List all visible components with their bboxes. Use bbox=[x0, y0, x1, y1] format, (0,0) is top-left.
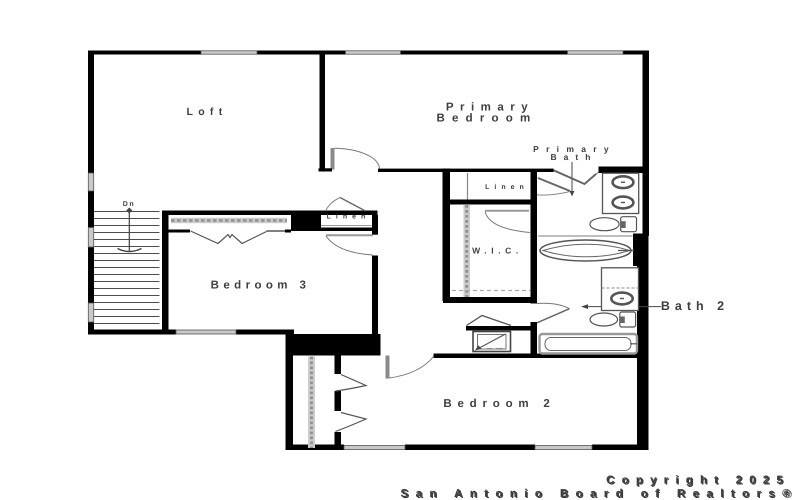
svg-text:Bath 2: Bath 2 bbox=[661, 299, 729, 313]
svg-text:Linen: Linen bbox=[327, 213, 371, 221]
svg-text:Bath: Bath bbox=[551, 152, 598, 162]
svg-text:Copyright 2025: Copyright 2025 bbox=[606, 475, 790, 487]
svg-text:San Antonio Board of Realtors®: San Antonio Board of Realtors® bbox=[401, 488, 798, 500]
svg-text:Dn: Dn bbox=[123, 201, 136, 208]
svg-text:Bedroom 2: Bedroom 2 bbox=[443, 398, 555, 410]
svg-text:Linen: Linen bbox=[485, 183, 529, 191]
svg-text:Loft: Loft bbox=[186, 106, 227, 118]
svg-text:Bedroom: Bedroom bbox=[437, 113, 538, 125]
svg-text:Bedroom 3: Bedroom 3 bbox=[211, 280, 311, 292]
svg-text:W.I.C.: W.I.C. bbox=[472, 246, 523, 256]
